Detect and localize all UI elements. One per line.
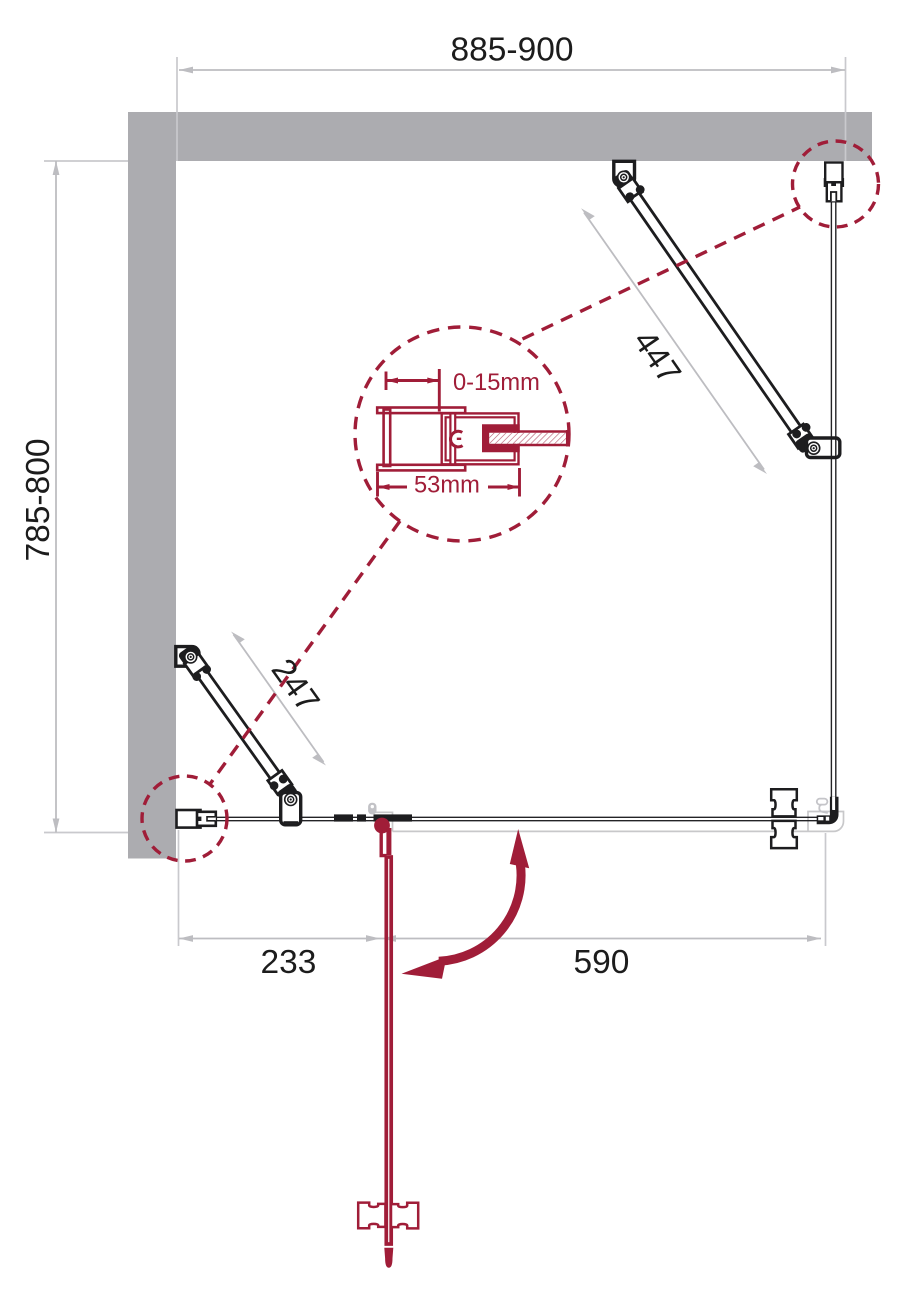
svg-text:233: 233 [261, 944, 317, 981]
svg-text:447: 447 [626, 324, 688, 391]
svg-text:53mm: 53mm [414, 473, 480, 499]
svg-text:247: 247 [264, 652, 327, 719]
svg-text:785-800: 785-800 [20, 439, 57, 562]
svg-text:0-15mm: 0-15mm [453, 370, 540, 396]
svg-text:885-900: 885-900 [451, 32, 574, 69]
svg-text:590: 590 [574, 944, 630, 981]
